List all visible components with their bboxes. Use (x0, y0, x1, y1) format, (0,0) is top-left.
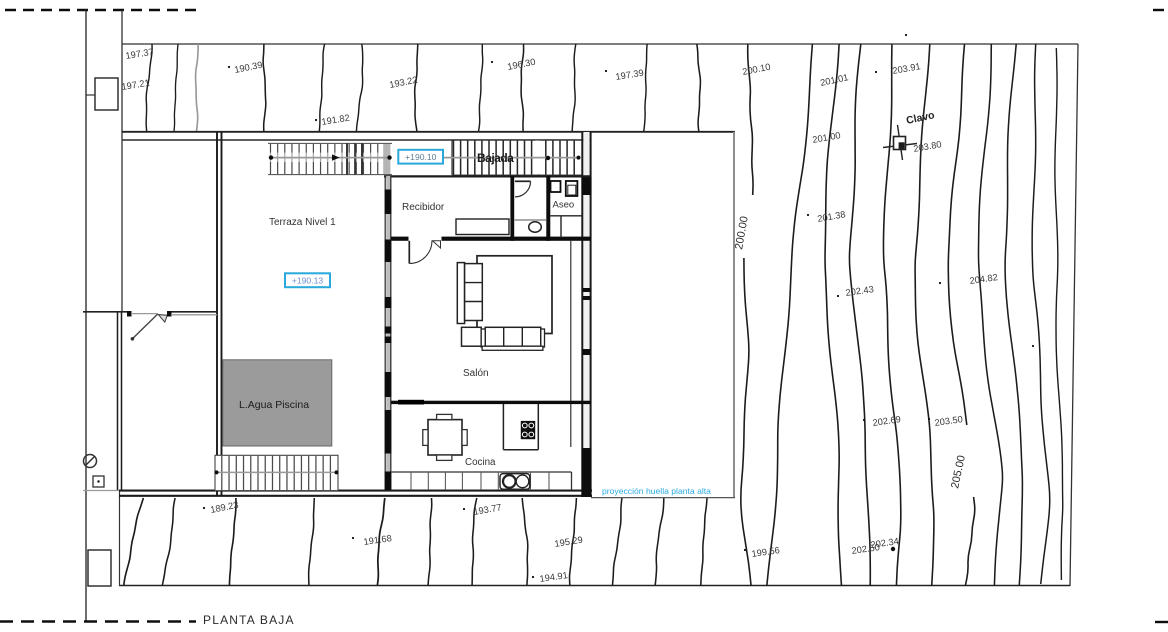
svg-text:190.39: 190.39 (233, 60, 263, 75)
svg-text:204.82: 204.82 (969, 272, 999, 286)
svg-text:PLANTA BAJA: PLANTA BAJA (203, 613, 295, 627)
svg-text:proyección huella planta alta: proyección huella planta alta (602, 486, 711, 496)
svg-text:Terraza Nivel 1: Terraza Nivel 1 (269, 217, 336, 228)
svg-text:+190.10: +190.10 (405, 152, 437, 162)
svg-text:197.21: 197.21 (121, 78, 151, 92)
svg-text:Aseo: Aseo (553, 200, 575, 211)
svg-text:Cocina: Cocina (465, 457, 496, 468)
svg-text:205.00: 205.00 (949, 454, 968, 489)
svg-text:Recibidor: Recibidor (402, 202, 445, 213)
svg-text:202.69: 202.69 (872, 414, 902, 428)
svg-text:201.00: 201.00 (812, 130, 842, 145)
svg-text:193.77: 193.77 (473, 502, 503, 517)
svg-text:197.37: 197.37 (125, 47, 155, 61)
svg-text:197.39: 197.39 (615, 68, 645, 82)
svg-text:202.34: 202.34 (870, 536, 900, 550)
svg-text:+190.13: +190.13 (292, 276, 324, 286)
svg-text:201.01: 201.01 (819, 72, 849, 88)
svg-text:Salón: Salón (463, 368, 489, 379)
svg-text:191.82: 191.82 (321, 113, 351, 127)
svg-text:195.29: 195.29 (554, 535, 584, 549)
svg-text:191.68: 191.68 (363, 533, 393, 547)
svg-text:Bajada: Bajada (477, 151, 514, 165)
svg-text:201.38: 201.38 (817, 209, 847, 224)
svg-text:Clavo: Clavo (905, 109, 935, 127)
svg-text:203.80: 203.80 (913, 139, 943, 154)
svg-text:199.56: 199.56 (751, 545, 781, 559)
svg-text:202.43: 202.43 (845, 284, 875, 298)
svg-text:194.91: 194.91 (539, 570, 569, 584)
svg-text:L.Agua Piscina: L.Agua Piscina (239, 399, 309, 411)
svg-text:193.22: 193.22 (388, 75, 418, 90)
svg-text:200.00: 200.00 (733, 215, 751, 250)
svg-text:203.50: 203.50 (934, 414, 964, 428)
svg-text:200.10: 200.10 (741, 62, 771, 77)
svg-text:203.91: 203.91 (892, 61, 922, 76)
